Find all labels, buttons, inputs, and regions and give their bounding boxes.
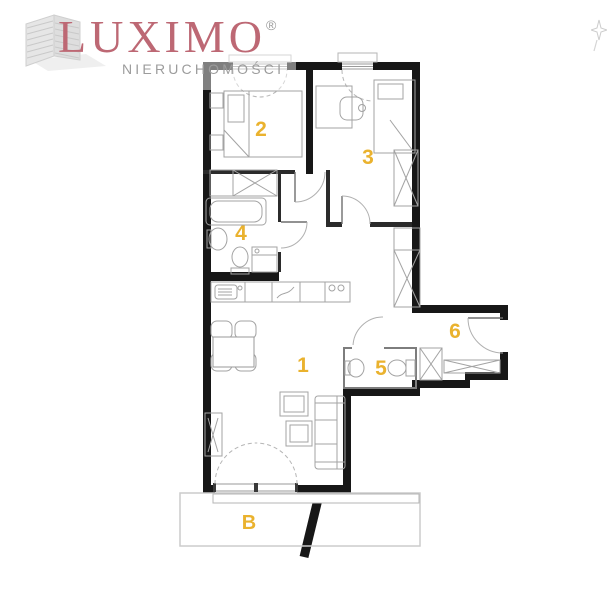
nightstand-icon [210,93,223,108]
stove-icon [277,287,294,298]
bathroom-door [281,222,307,248]
room-label-bedroom-1: 2 [255,118,267,141]
room-label-wc: 5 [375,357,387,380]
dining-set-icon [211,321,256,371]
toilet-icon [388,360,415,376]
balcony-door [213,443,298,492]
brand-subtitle: NIERUCHOMOŚCI [122,61,284,77]
shoe-cabinet-icon [444,360,500,373]
bedroom-1-furniture [210,91,302,196]
room-label-hall: 6 [449,320,461,343]
fridge-icon [329,285,344,291]
bedroom-2-door [342,196,370,224]
room-label-bathroom: 4 [235,222,247,245]
floor-plan-page: 1 2 3 4 5 6 B LUXIMO® [0,0,607,606]
toilet-icon [231,247,249,274]
entrance-door [468,318,503,353]
floor-plan: 1 2 3 4 5 6 B [0,0,607,606]
compass-icon [591,18,607,54]
bathtub-icon [206,198,266,225]
bedroom-1-door [295,172,325,202]
sink-icon [215,285,242,299]
bedroom-2-furniture [316,80,418,206]
washer-icon [252,247,277,272]
room-label-balcony: B [242,512,256,534]
wardrobe-icon [420,348,442,380]
room-label-living-room: 1 [297,354,309,377]
sofa-icon [315,396,345,469]
coffee-table-icon [286,421,312,446]
living-room-furniture [205,392,345,469]
brand-name: LUXIMO [58,11,266,62]
room-label-bedroom-2: 3 [362,146,374,169]
washbasin-icon [345,359,364,377]
nightstand-icon [210,135,223,150]
bedroom-2-window [338,53,377,101]
brand-logo: LUXIMO® NIERUCHOMOŚCI [0,4,296,90]
desk-icon [316,86,352,128]
chair-icon [340,97,366,120]
balcony [180,493,420,546]
coffee-table-icon [280,392,308,416]
single-bed-icon [374,80,415,153]
wc-door [353,317,383,347]
registered-mark: ® [266,17,276,33]
brand-text: LUXIMO® NIERUCHOMOŚCI [58,12,284,77]
kitchen-counter [211,282,350,302]
